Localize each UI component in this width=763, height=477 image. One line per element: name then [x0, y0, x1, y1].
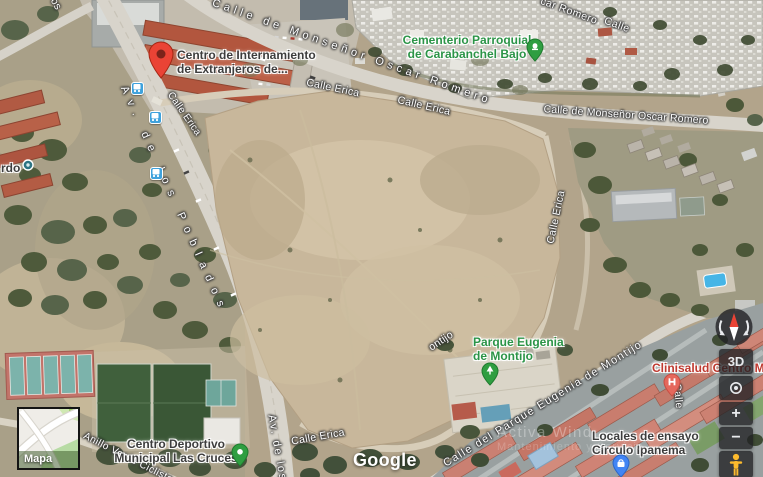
place-label-parque[interactable]: Parque Eugeniade Montijo [473, 336, 564, 363]
transit-stop-icon-0[interactable] [131, 82, 144, 95]
poi-green-pin-deportivo[interactable] [231, 443, 249, 472]
place-label-deportivo[interactable]: Centro DeportivoMunicipal Las Cruces [114, 438, 237, 465]
poi-dot-pin-rdo[interactable] [22, 158, 34, 176]
minimap-toggle[interactable]: Mapa [17, 407, 80, 470]
pegman-icon [727, 453, 745, 477]
poi-hospital-pin-clinisalud[interactable] [663, 373, 681, 402]
place-label-locales[interactable]: Locales de ensayoCírculo Ipanema [592, 430, 699, 457]
place-label-rdo[interactable]: rdo [1, 162, 20, 176]
tilt-3d-button[interactable]: 3D [719, 349, 753, 374]
poi-park-pin-parque[interactable] [481, 362, 499, 391]
google-logo[interactable]: Google [353, 450, 417, 471]
zoom-out-button[interactable]: − [719, 427, 753, 449]
my-location-icon [728, 380, 744, 396]
place-label-cementerio[interactable]: Cementerio Parroquialde Carabanchel Bajo [403, 34, 532, 61]
poi-bag-pin-locales[interactable] [612, 454, 630, 477]
minimap-label: Mapa [24, 453, 52, 465]
place-label-cie[interactable]: Centro de Internamientode Extranjeros de… [177, 49, 316, 76]
place-labels-layer: Centro de Internamientode Extranjeros de… [0, 0, 763, 477]
transit-stop-icon-1[interactable] [149, 111, 162, 124]
transit-stop-icon-2[interactable] [150, 167, 163, 180]
zoom-in-button[interactable]: + [719, 402, 753, 425]
red-marker-pin-cie[interactable] [148, 41, 174, 84]
pegman-button[interactable] [719, 451, 753, 477]
map-viewport[interactable]: Calle de Monseñor Oscar RomeroCalle de M… [0, 0, 763, 477]
my-location-button[interactable] [719, 376, 753, 400]
compass-control[interactable] [712, 305, 756, 349]
poi-cemetery-pin-cementerio[interactable] [526, 38, 544, 67]
